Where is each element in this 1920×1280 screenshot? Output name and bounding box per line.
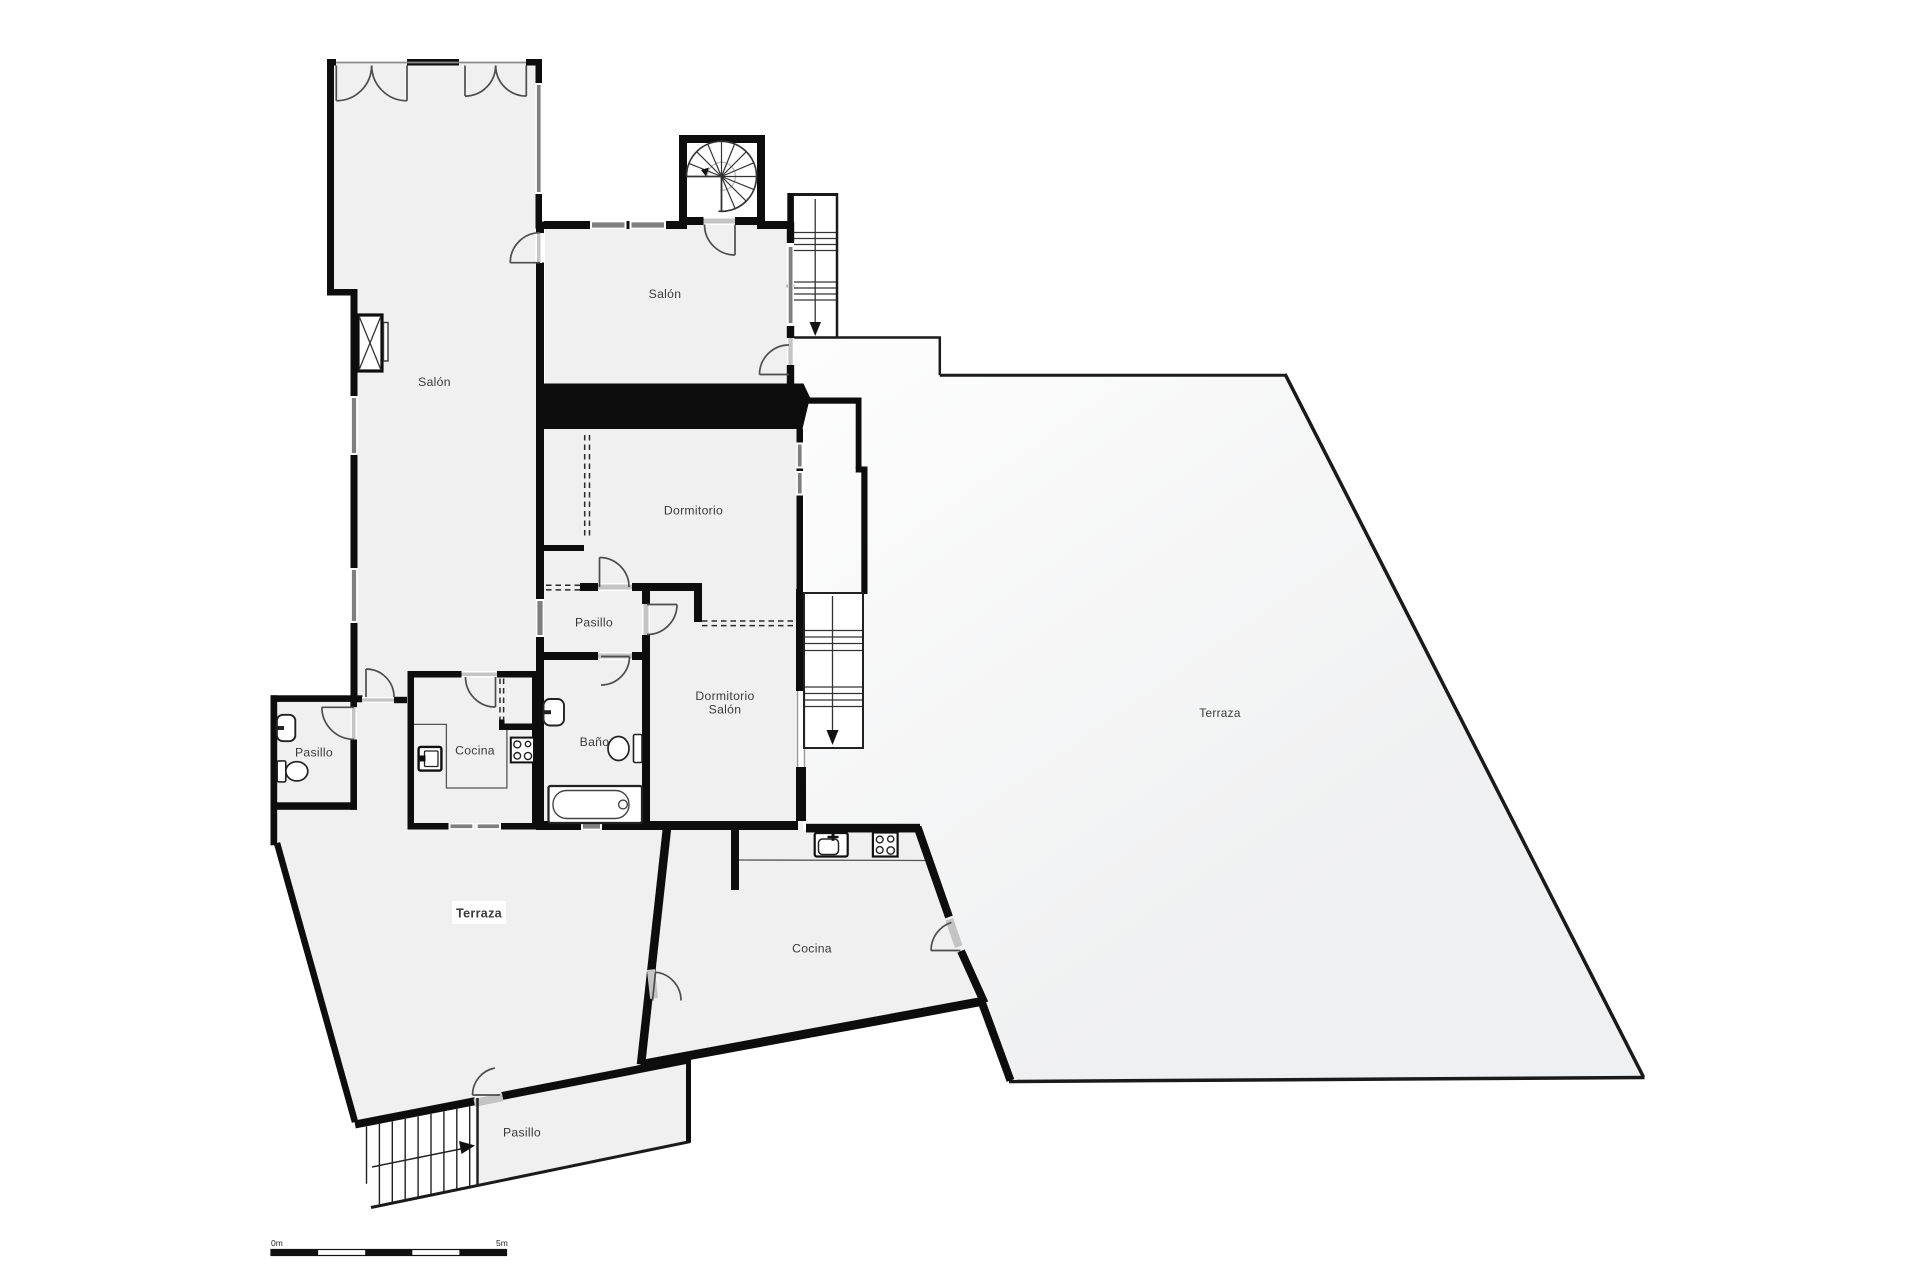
svg-text:Terraza: Terraza <box>1199 706 1241 720</box>
svg-text:Pasillo: Pasillo <box>575 616 613 630</box>
svg-text:Salón: Salón <box>418 375 451 389</box>
svg-text:Pasillo: Pasillo <box>503 1126 541 1140</box>
svg-text:Pasillo: Pasillo <box>295 746 333 760</box>
svg-text:Dormitorio: Dormitorio <box>695 689 754 703</box>
svg-text:Terraza: Terraza <box>456 907 503 921</box>
svg-text:0m: 0m <box>271 1238 283 1248</box>
svg-text:Cocina: Cocina <box>792 942 832 956</box>
svg-text:Cocina: Cocina <box>455 744 495 758</box>
svg-text:5m: 5m <box>496 1238 508 1248</box>
svg-text:Dormitorio: Dormitorio <box>664 504 723 518</box>
svg-text:Salón: Salón <box>649 287 682 301</box>
svg-text:Baño: Baño <box>580 735 610 749</box>
svg-text:Salón: Salón <box>709 703 742 717</box>
